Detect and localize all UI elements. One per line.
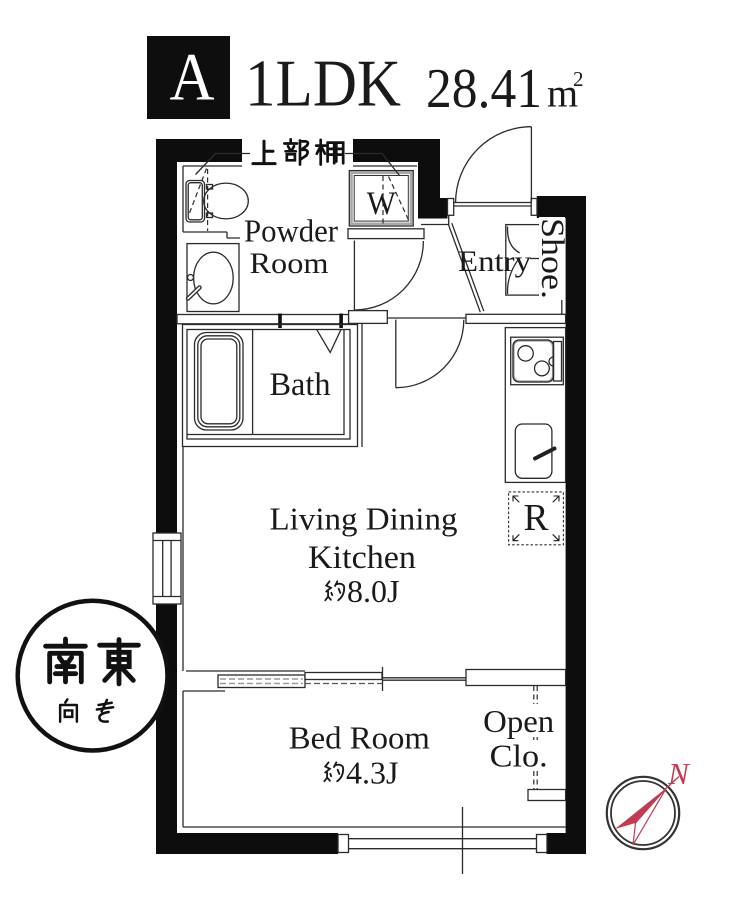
- svg-text:A: A: [170, 39, 215, 115]
- svg-text:W: W: [367, 186, 397, 222]
- svg-text:Powder: Powder: [244, 213, 338, 249]
- svg-text:Clo.: Clo.: [490, 738, 548, 774]
- svg-text:Room: Room: [250, 247, 329, 280]
- svg-text:Living Dining: Living Dining: [270, 502, 458, 537]
- svg-text:28.41: 28.41: [426, 58, 542, 120]
- svg-text:4.3J: 4.3J: [346, 755, 398, 791]
- svg-text:Shoe.: Shoe.: [534, 218, 570, 299]
- svg-text:Bath: Bath: [270, 367, 331, 403]
- svg-text:2: 2: [573, 67, 584, 91]
- svg-text:N: N: [667, 756, 691, 791]
- svg-text:Open: Open: [483, 703, 554, 739]
- svg-text:1LDK: 1LDK: [245, 47, 401, 121]
- svg-text:Entry: Entry: [458, 245, 531, 278]
- svg-text:R: R: [524, 497, 550, 539]
- svg-text:Bed Room: Bed Room: [289, 720, 430, 756]
- svg-text:Kitchen: Kitchen: [308, 540, 416, 576]
- svg-text:8.0J: 8.0J: [347, 573, 399, 609]
